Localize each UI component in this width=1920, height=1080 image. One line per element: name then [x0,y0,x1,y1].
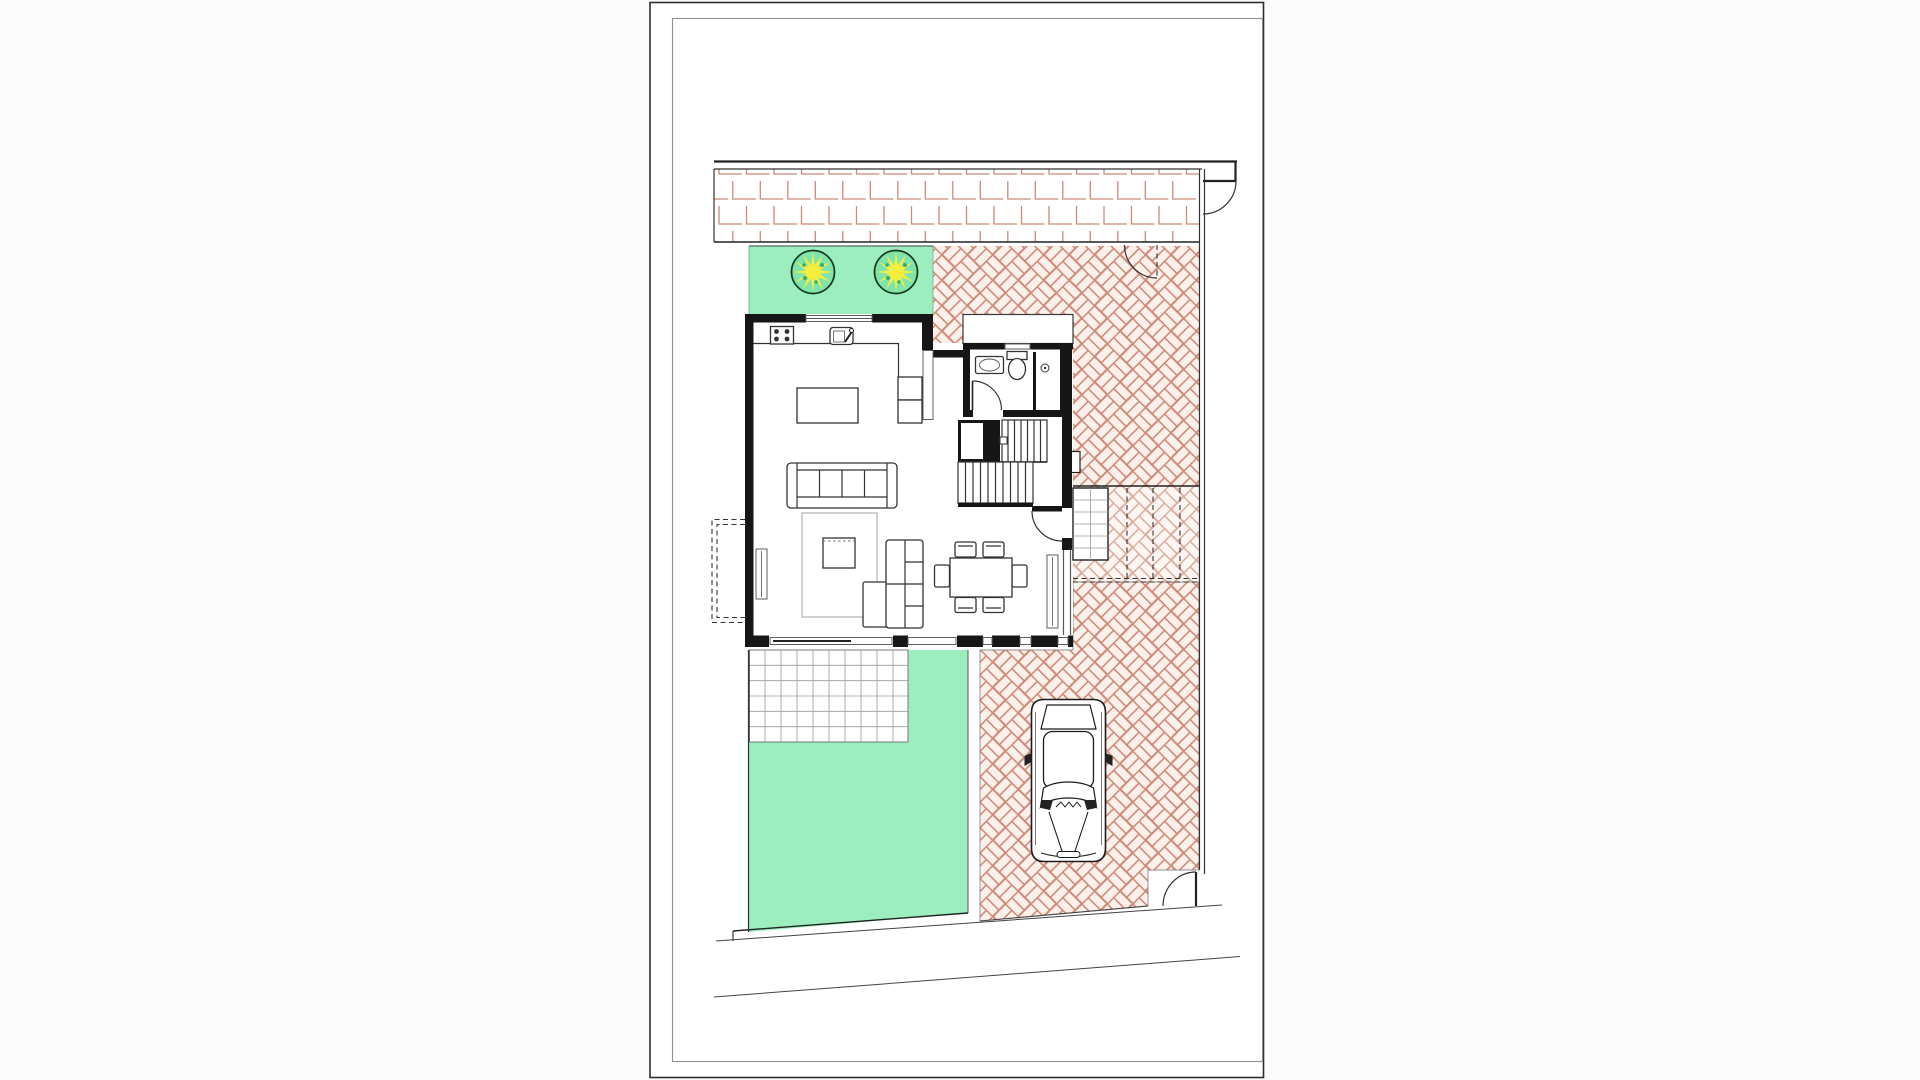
car-roof [1044,732,1094,789]
stove [771,327,794,345]
car-rear-window [1041,705,1096,729]
dining-chair [983,542,1004,557]
dining-chair [955,542,976,557]
dining-chair [935,565,950,587]
kitchen-island [797,388,858,423]
lounge-chair [886,540,923,628]
tree-icon [875,251,918,294]
tall-cabinet [898,400,922,423]
floor-plan-canvas [0,0,1920,1080]
dining-table [950,558,1012,597]
terrace-tiles [749,650,908,742]
toilet-bowl [1009,359,1026,380]
dining-chair [955,598,976,613]
garden-strip-top [749,246,933,315]
radiator-east [1047,555,1058,628]
coffee-table [823,538,855,568]
floor-plan-page [0,0,1920,1080]
sidewalk-pavement [714,161,1237,242]
sofa [787,463,897,508]
entry-exterior-steps [1073,488,1108,560]
tree-icon [792,251,835,294]
window-south [908,638,956,645]
radiator-west [756,549,767,599]
entry-porch-canopy [963,315,1073,344]
dining-chair [1012,565,1027,587]
tall-cabinet [898,377,922,400]
dining-chair [983,598,1004,613]
under-stair-closet [960,422,985,461]
car-icon [1025,700,1113,862]
